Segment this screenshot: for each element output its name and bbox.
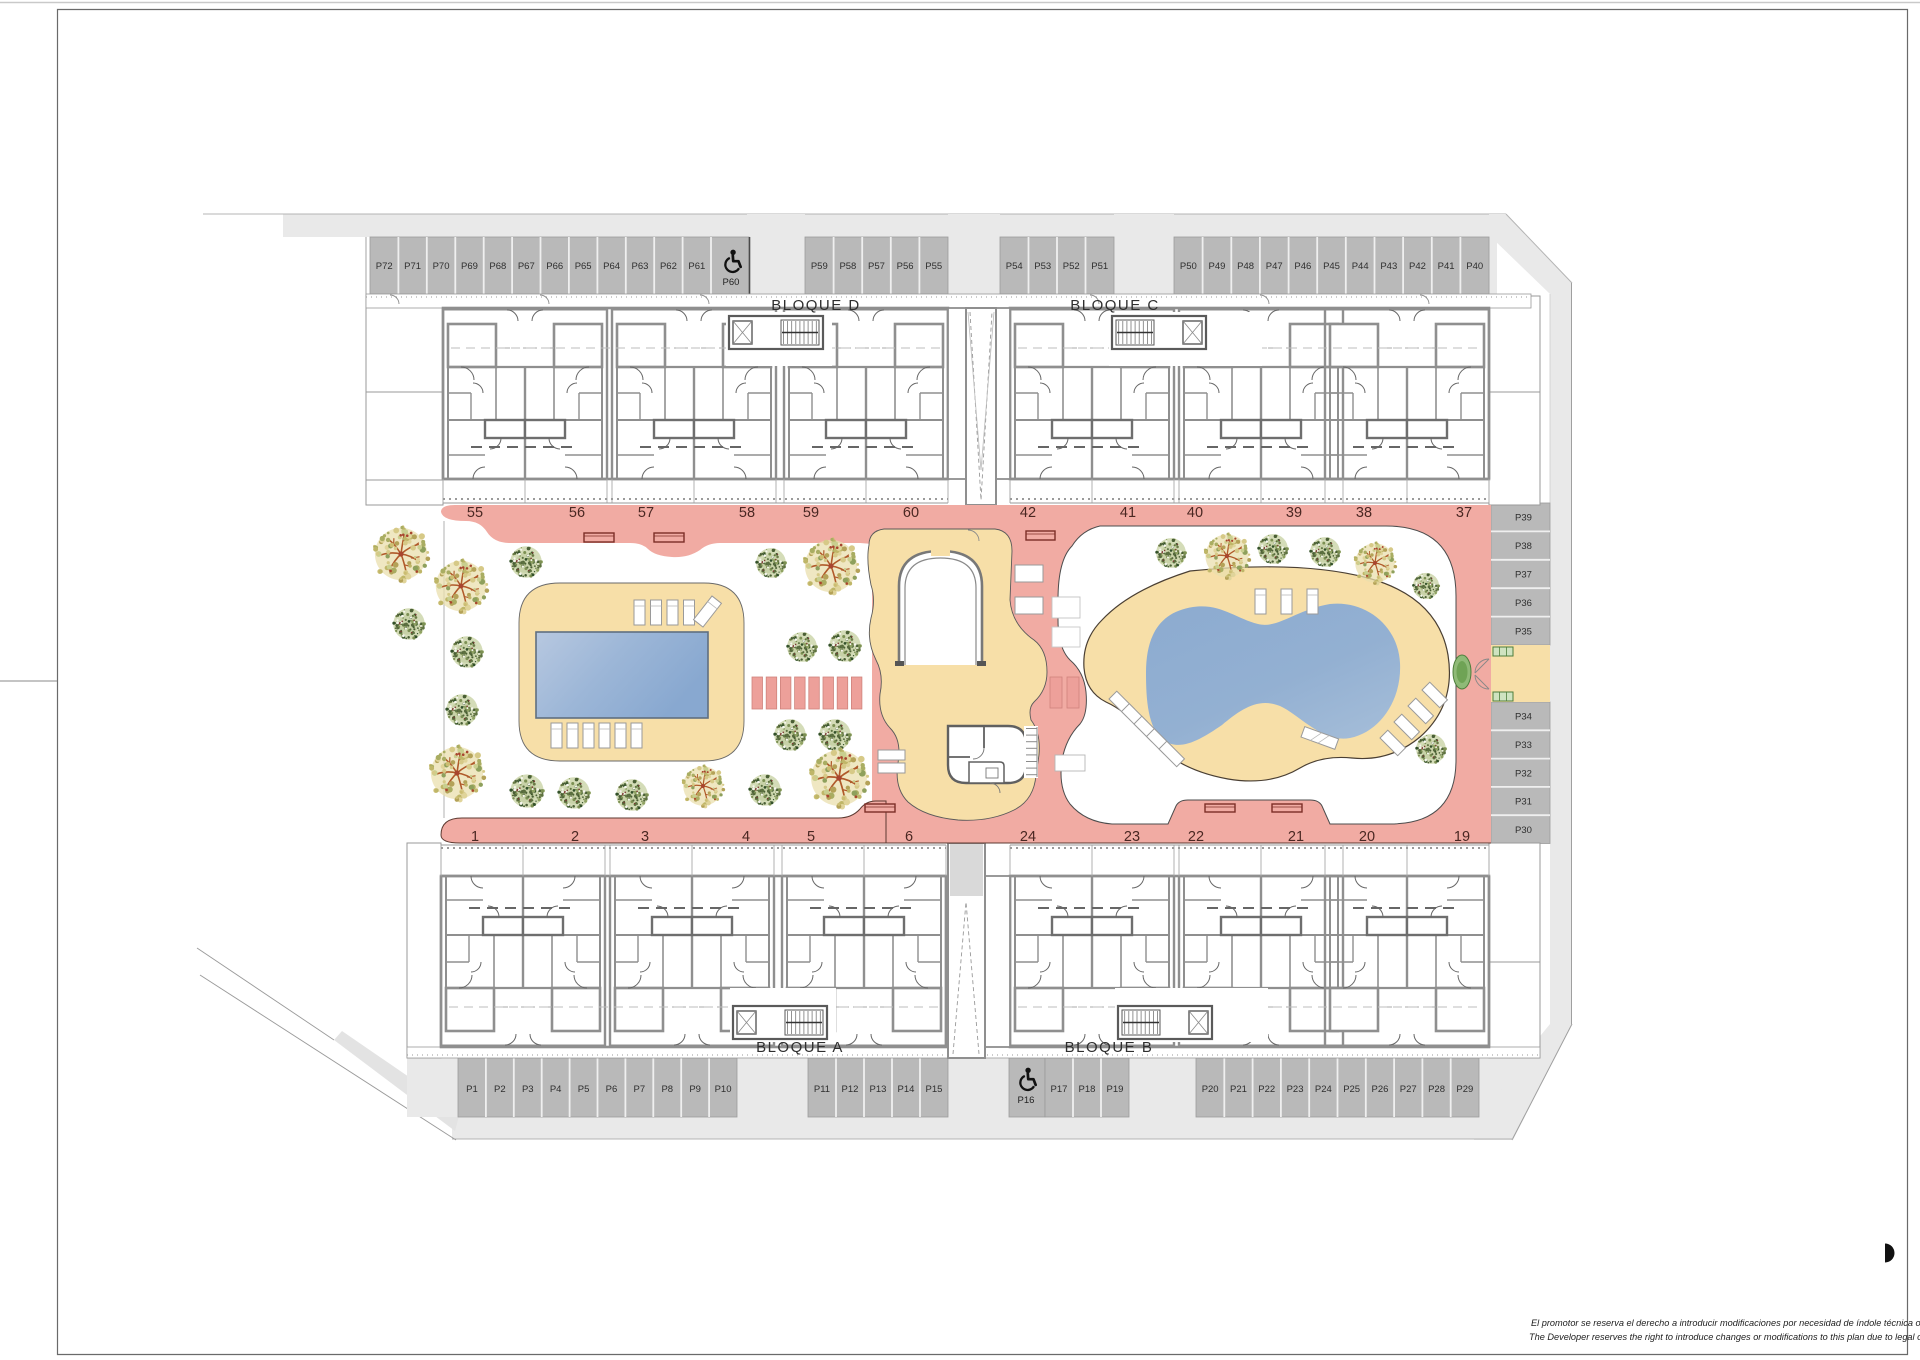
svg-text:P29: P29 (1456, 1084, 1473, 1095)
svg-text:P36: P36 (1515, 598, 1532, 609)
svg-text:40: 40 (1187, 505, 1203, 521)
svg-text:P64: P64 (603, 261, 620, 272)
svg-text:1: 1 (471, 829, 479, 845)
svg-text:P63: P63 (632, 261, 649, 272)
svg-text:P24: P24 (1315, 1084, 1332, 1095)
svg-text:The Developer reserves the rig: The Developer reserves the right to intr… (1529, 1332, 1920, 1342)
svg-text:P33: P33 (1515, 740, 1532, 751)
svg-text:P19: P19 (1107, 1084, 1124, 1095)
svg-text:P58: P58 (839, 261, 856, 272)
svg-text:P11: P11 (814, 1084, 830, 1095)
svg-text:P28: P28 (1428, 1084, 1445, 1095)
svg-text:P18: P18 (1079, 1084, 1096, 1095)
svg-text:P53: P53 (1034, 261, 1051, 272)
svg-text:20: 20 (1359, 829, 1375, 845)
svg-text:58: 58 (739, 505, 755, 521)
svg-text:P54: P54 (1006, 261, 1023, 272)
svg-text:P48: P48 (1237, 261, 1254, 272)
svg-text:21: 21 (1288, 829, 1304, 845)
svg-text:BLOQUE A: BLOQUE A (756, 1039, 844, 1056)
svg-text:P15: P15 (926, 1084, 943, 1095)
svg-text:P31: P31 (1515, 797, 1532, 808)
svg-text:P56: P56 (897, 261, 914, 272)
svg-text:24: 24 (1020, 829, 1036, 845)
svg-text:P71: P71 (404, 261, 421, 272)
svg-text:3: 3 (641, 829, 649, 845)
svg-text:P35: P35 (1515, 626, 1532, 637)
svg-text:P67: P67 (518, 261, 535, 272)
svg-text:19: 19 (1454, 829, 1470, 845)
svg-text:P62: P62 (660, 261, 677, 272)
svg-text:P55: P55 (925, 261, 942, 272)
svg-text:P23: P23 (1287, 1084, 1304, 1095)
svg-text:P34: P34 (1515, 712, 1532, 723)
svg-text:P12: P12 (842, 1084, 859, 1095)
svg-text:P39: P39 (1515, 513, 1532, 524)
svg-text:P52: P52 (1063, 261, 1080, 272)
svg-text:P44: P44 (1352, 261, 1369, 272)
svg-text:2: 2 (571, 829, 579, 845)
svg-text:P6: P6 (606, 1084, 618, 1095)
svg-text:P8: P8 (661, 1084, 673, 1095)
svg-text:P57: P57 (868, 261, 885, 272)
svg-text:60: 60 (903, 505, 919, 521)
svg-text:P22: P22 (1258, 1084, 1275, 1095)
svg-text:P2: P2 (494, 1084, 506, 1095)
svg-text:38: 38 (1356, 505, 1372, 521)
svg-text:P72: P72 (376, 261, 393, 272)
svg-text:P49: P49 (1209, 261, 1226, 272)
svg-text:P45: P45 (1323, 261, 1340, 272)
svg-text:BLOQUE B: BLOQUE B (1065, 1039, 1154, 1056)
svg-text:P46: P46 (1294, 261, 1311, 272)
svg-text:57: 57 (638, 505, 654, 521)
svg-text:6: 6 (905, 829, 913, 845)
svg-text:P68: P68 (489, 261, 506, 272)
svg-text:P32: P32 (1515, 768, 1532, 779)
svg-text:P26: P26 (1371, 1084, 1388, 1095)
svg-text:P16: P16 (1018, 1095, 1035, 1106)
svg-text:P10: P10 (715, 1084, 732, 1095)
svg-text:4: 4 (742, 829, 750, 845)
svg-text:P66: P66 (546, 261, 563, 272)
svg-text:P47: P47 (1266, 261, 1283, 272)
svg-text:P60: P60 (723, 277, 740, 288)
svg-text:P40: P40 (1466, 261, 1483, 272)
svg-text:37: 37 (1456, 505, 1472, 521)
svg-text:P9: P9 (689, 1084, 701, 1095)
svg-text:BLOQUE C: BLOQUE C (1070, 297, 1160, 314)
svg-text:42: 42 (1020, 505, 1036, 521)
svg-text:P3: P3 (522, 1084, 534, 1095)
svg-text:P7: P7 (634, 1084, 646, 1095)
svg-text:P70: P70 (433, 261, 450, 272)
svg-text:P30: P30 (1515, 825, 1532, 836)
svg-text:P5: P5 (578, 1084, 590, 1095)
svg-text:P42: P42 (1409, 261, 1426, 272)
svg-text:59: 59 (803, 505, 819, 521)
svg-text:P25: P25 (1343, 1084, 1360, 1095)
svg-text:P37: P37 (1515, 570, 1532, 581)
svg-text:P43: P43 (1380, 261, 1397, 272)
svg-text:P61: P61 (688, 261, 705, 272)
svg-text:P65: P65 (575, 261, 592, 272)
svg-text:P69: P69 (461, 261, 478, 272)
svg-text:BLOQUE D: BLOQUE D (771, 297, 861, 314)
svg-text:P20: P20 (1202, 1084, 1219, 1095)
svg-text:P51: P51 (1091, 261, 1108, 272)
svg-text:P4: P4 (550, 1084, 562, 1095)
svg-text:P13: P13 (870, 1084, 887, 1095)
svg-text:55: 55 (467, 505, 483, 521)
svg-text:P21: P21 (1230, 1084, 1247, 1095)
svg-text:P41: P41 (1438, 261, 1455, 272)
svg-text:P1: P1 (466, 1084, 478, 1095)
svg-text:El promotor se reserva el dere: El promotor se reserva el derecho a intr… (1531, 1318, 1920, 1328)
svg-text:41: 41 (1120, 505, 1136, 521)
svg-text:P27: P27 (1400, 1084, 1417, 1095)
svg-text:P59: P59 (811, 261, 828, 272)
svg-text:P17: P17 (1051, 1084, 1068, 1095)
svg-text:P50: P50 (1180, 261, 1197, 272)
svg-text:P38: P38 (1515, 541, 1532, 552)
svg-text:23: 23 (1124, 829, 1140, 845)
svg-text:22: 22 (1188, 829, 1204, 845)
svg-text:5: 5 (807, 829, 815, 845)
svg-text:56: 56 (569, 505, 585, 521)
svg-text:P14: P14 (898, 1084, 915, 1095)
svg-text:39: 39 (1286, 505, 1302, 521)
